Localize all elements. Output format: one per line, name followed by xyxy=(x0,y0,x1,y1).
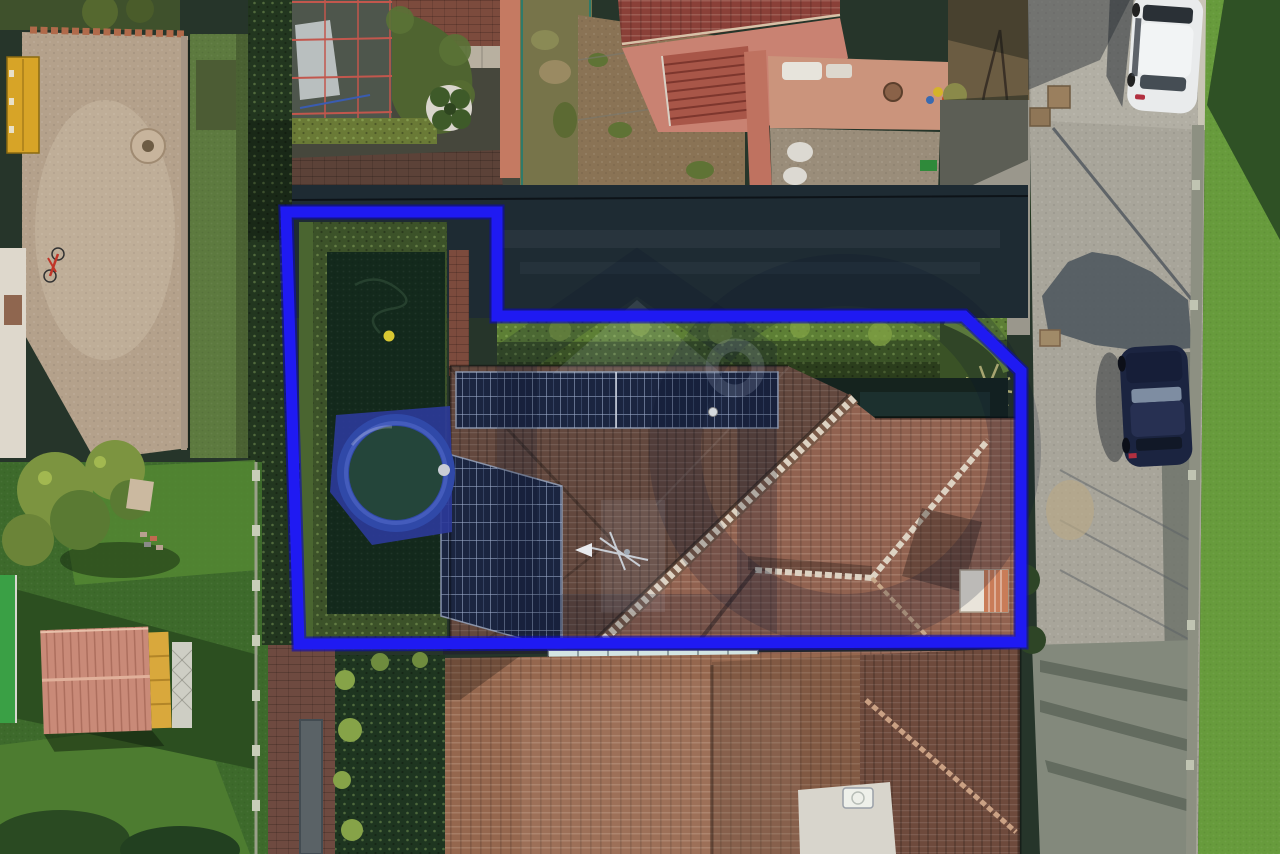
aerial-photo-canvas xyxy=(0,0,1280,854)
toy xyxy=(926,96,934,104)
white-furniture xyxy=(826,64,852,78)
grass-shade-edge xyxy=(236,34,248,458)
hedge-clump xyxy=(386,6,414,34)
hedge-clump xyxy=(439,34,471,66)
hedge-sunlit-clump xyxy=(412,652,428,668)
car-roof xyxy=(1130,400,1186,437)
wooden-shed xyxy=(40,626,172,752)
hedge-sunlit-clump xyxy=(333,771,351,789)
white-wall xyxy=(0,248,26,458)
tail-light xyxy=(1135,94,1145,100)
lower-building-roof xyxy=(443,648,1020,854)
fence-post xyxy=(1186,760,1194,770)
tail-light xyxy=(1128,453,1136,458)
white-sack xyxy=(783,167,807,185)
backyard-structure xyxy=(860,392,990,416)
hedge-sunlit-clump xyxy=(335,670,355,690)
plant-patch xyxy=(588,53,608,67)
dry-shrub xyxy=(1046,480,1094,540)
fence-post xyxy=(1190,300,1198,310)
fence-post xyxy=(252,470,260,481)
car-roof xyxy=(1137,22,1194,78)
green-bin xyxy=(920,160,937,171)
aerial-photo xyxy=(0,0,1280,854)
flat-roof-ac xyxy=(798,782,896,854)
manhole-cover xyxy=(1048,86,1070,108)
pool-skimmer xyxy=(438,464,450,476)
external-staircase xyxy=(662,46,754,126)
fence-post xyxy=(1188,470,1196,480)
door-hinge xyxy=(9,126,14,133)
hedge-sunlit-clump xyxy=(341,819,363,841)
artificial-turf-strip xyxy=(0,575,16,723)
plant-patch xyxy=(608,122,632,138)
pool-water xyxy=(349,426,443,520)
white-trellis xyxy=(172,642,192,728)
fence-post xyxy=(252,525,260,536)
door-hinge xyxy=(9,98,14,105)
hedge-clump xyxy=(868,322,892,346)
driveway-streak xyxy=(500,230,1000,248)
manhole-cover xyxy=(1040,330,1060,346)
toy xyxy=(933,87,943,97)
white-furniture xyxy=(782,62,822,80)
dark-car xyxy=(1093,344,1193,469)
awning xyxy=(4,295,22,325)
manhole-cover xyxy=(1030,108,1050,126)
white-planter xyxy=(426,85,472,131)
fence-post xyxy=(252,690,260,701)
hedge-sunlit-clump xyxy=(371,653,389,671)
windshield xyxy=(1131,387,1182,404)
white-car xyxy=(1102,0,1204,114)
bush xyxy=(196,60,236,130)
board xyxy=(126,478,154,511)
fence-post xyxy=(252,745,260,756)
well-center xyxy=(142,140,154,152)
hedge-texture xyxy=(292,118,437,144)
rear-window xyxy=(1136,437,1183,451)
hedge-sunlit-clump xyxy=(338,718,362,742)
trunk xyxy=(1125,351,1182,384)
watermark-door-highlight xyxy=(601,500,665,612)
fence-post xyxy=(252,800,260,811)
brick-texture xyxy=(449,250,469,376)
plant-patch xyxy=(686,161,714,179)
roof-vent xyxy=(709,408,718,417)
ac-unit xyxy=(843,788,873,808)
salmon-wall xyxy=(500,0,520,178)
greenhouse-frame xyxy=(292,0,392,118)
fence-post xyxy=(252,580,260,591)
fence-post xyxy=(1187,620,1195,630)
gray-gate xyxy=(300,720,322,854)
brick-capped-wall xyxy=(30,30,186,34)
door-hinge xyxy=(9,70,14,77)
cable-spool-table xyxy=(884,83,902,101)
fence-post xyxy=(252,635,260,646)
white-sack xyxy=(787,142,813,162)
fence-post xyxy=(1192,180,1200,190)
yellow-ball xyxy=(384,331,395,342)
